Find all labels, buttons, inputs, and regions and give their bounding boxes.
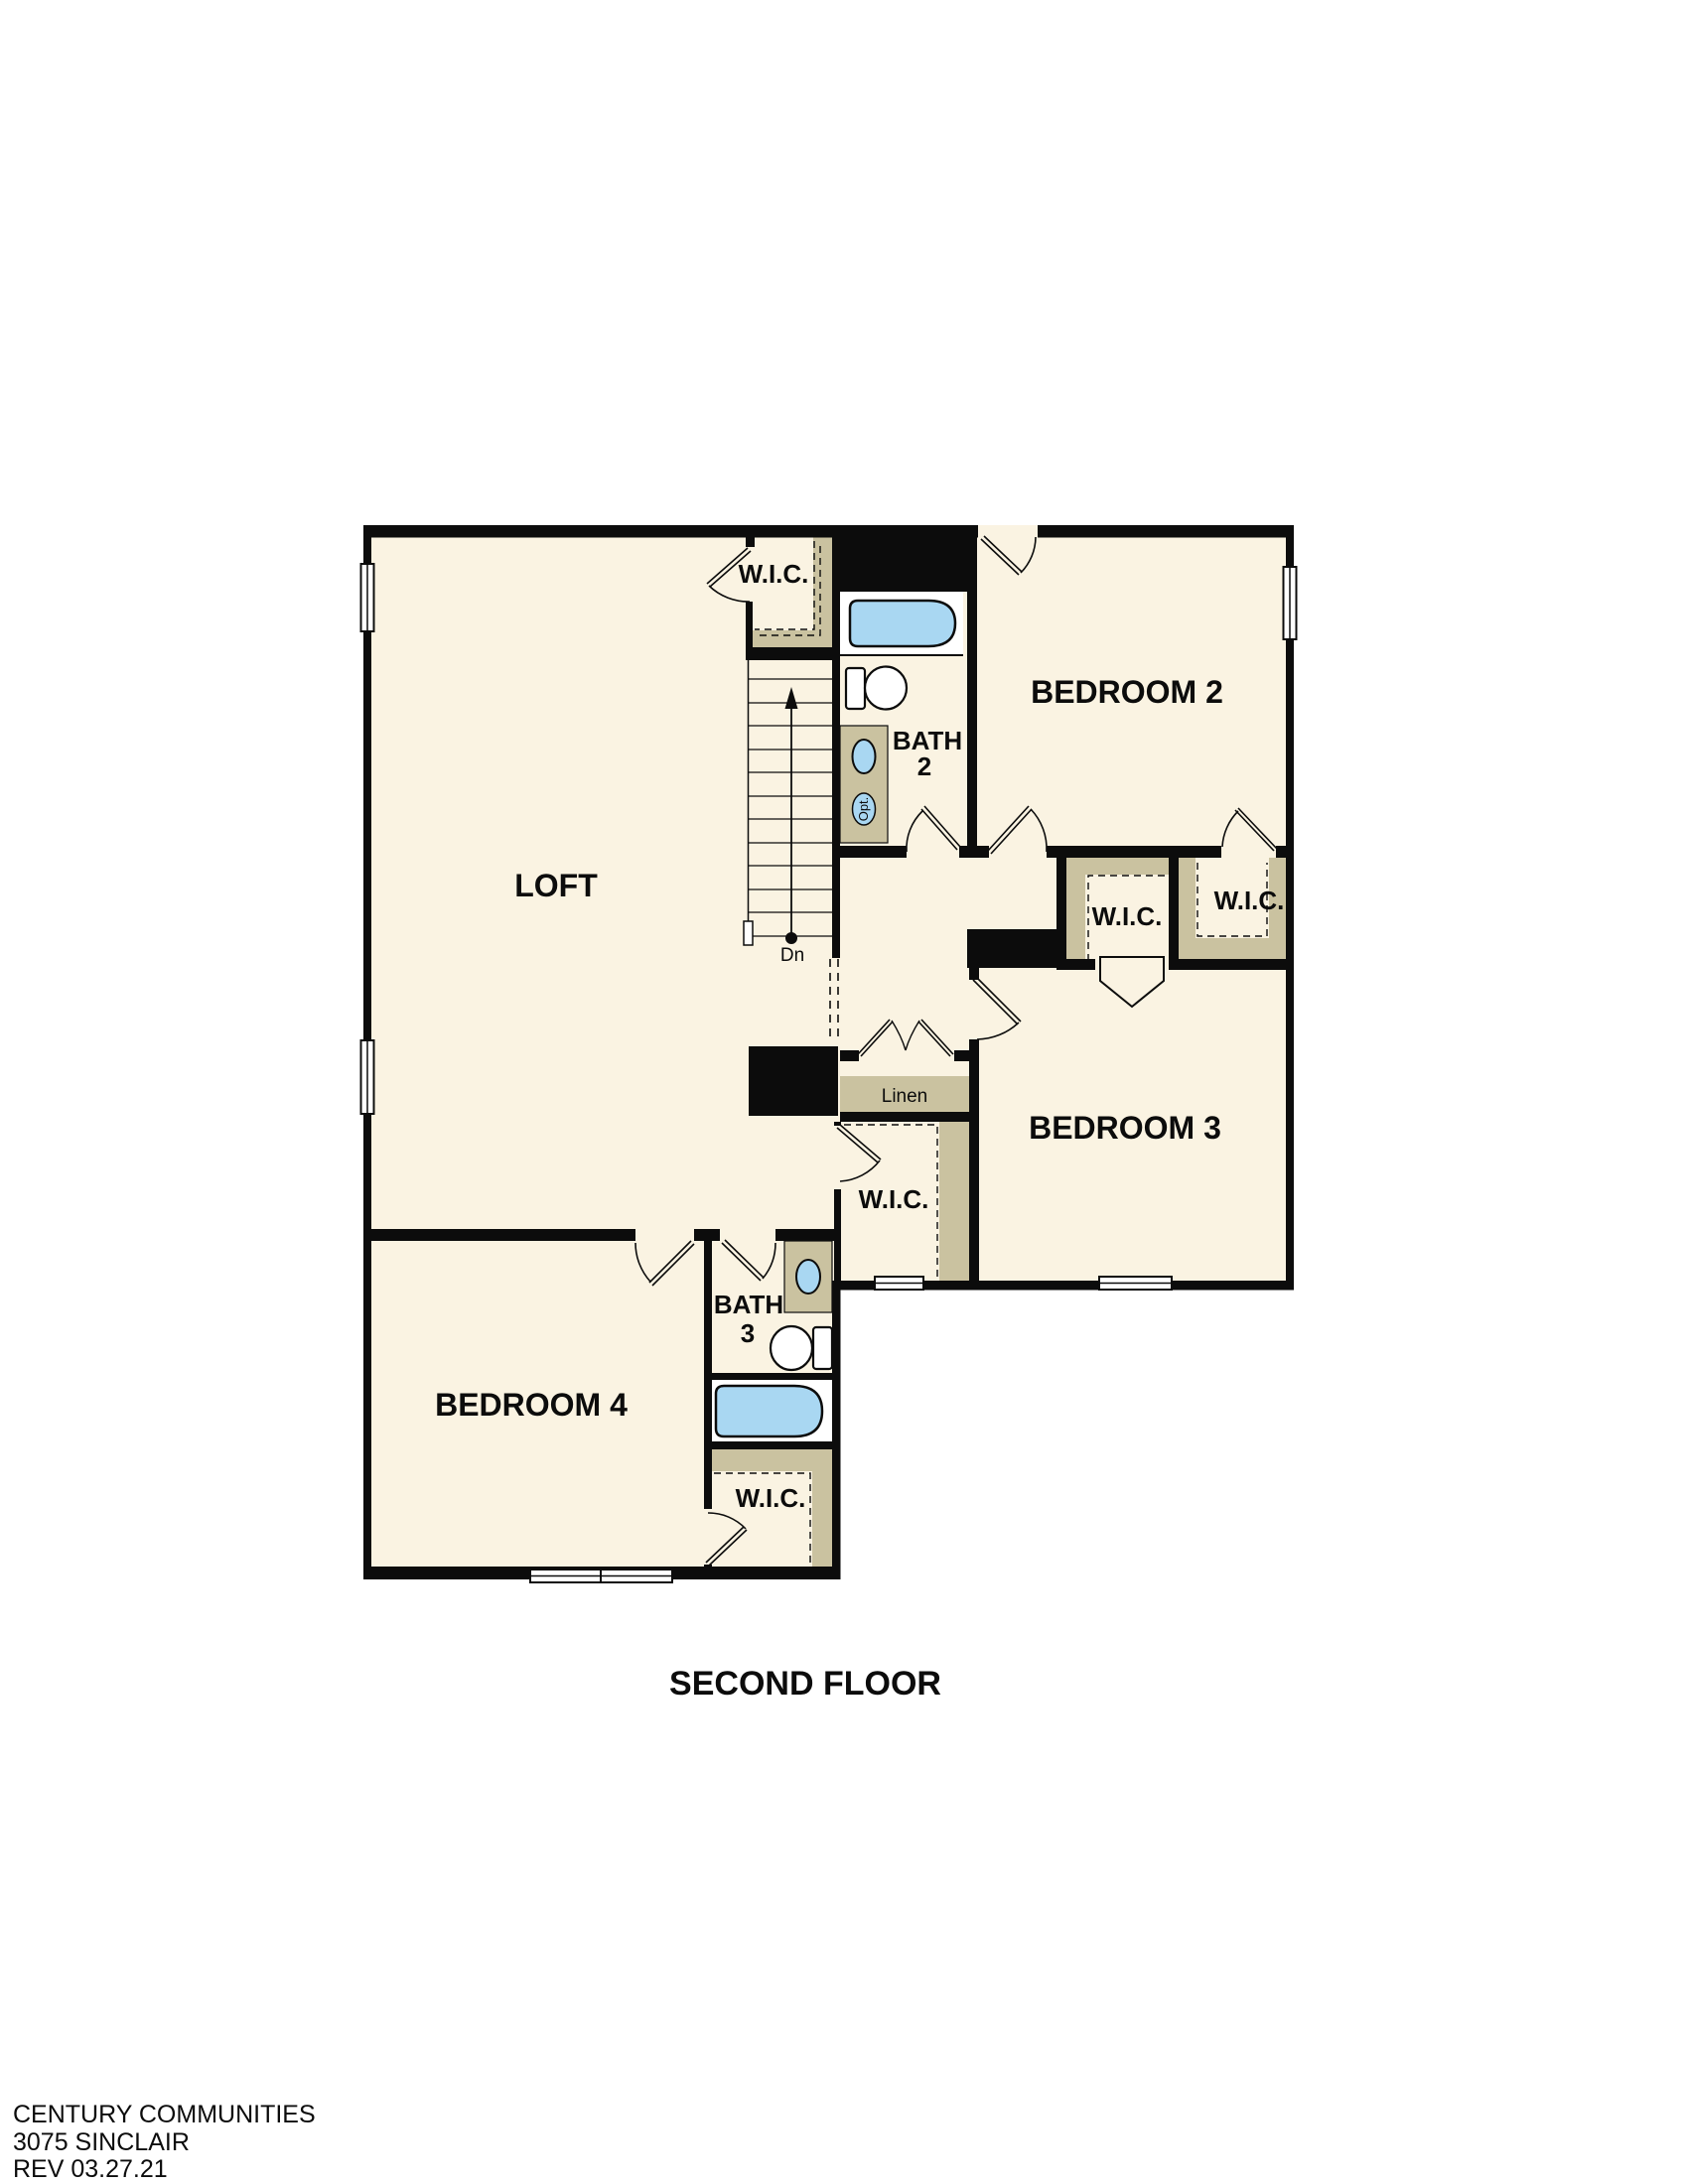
svg-text:2: 2: [917, 751, 931, 781]
svg-text:W.I.C.: W.I.C.: [1092, 901, 1163, 931]
svg-text:W.I.C.: W.I.C.: [739, 559, 809, 589]
svg-text:3075 SINCLAIR: 3075 SINCLAIR: [13, 2128, 190, 2156]
svg-text:BEDROOM 3: BEDROOM 3: [1029, 1110, 1221, 1146]
svg-text:3: 3: [741, 1318, 755, 1348]
svg-text:Linen: Linen: [882, 1086, 928, 1107]
svg-text:W.I.C.: W.I.C.: [859, 1184, 929, 1214]
svg-text:BATH: BATH: [714, 1290, 783, 1319]
svg-text:W.I.C.: W.I.C.: [1214, 886, 1285, 915]
svg-text:BEDROOM 2: BEDROOM 2: [1031, 674, 1223, 710]
svg-text:REV 03.27.21: REV 03.27.21: [13, 2155, 168, 2183]
svg-text:BEDROOM 4: BEDROOM 4: [435, 1387, 628, 1423]
svg-text:LOFT: LOFT: [514, 868, 598, 903]
svg-text:Dn: Dn: [780, 945, 804, 966]
svg-text:SECOND FLOOR: SECOND FLOOR: [669, 1665, 941, 1703]
svg-text:Opt.: Opt.: [856, 797, 871, 822]
svg-text:W.I.C.: W.I.C.: [736, 1483, 806, 1513]
svg-text:CENTURY COMMUNITIES: CENTURY COMMUNITIES: [13, 2101, 316, 2128]
